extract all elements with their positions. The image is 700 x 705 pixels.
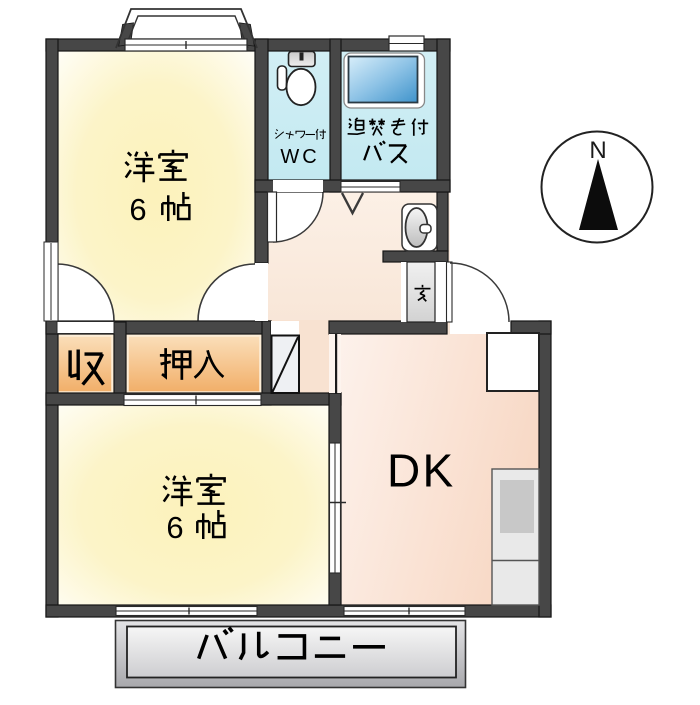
- svg-text:DK: DK: [387, 445, 456, 497]
- svg-text:WC: WC: [280, 146, 319, 168]
- svg-text:6: 6: [129, 192, 146, 227]
- svg-text:N: N: [589, 137, 606, 164]
- svg-text:6: 6: [166, 510, 183, 545]
